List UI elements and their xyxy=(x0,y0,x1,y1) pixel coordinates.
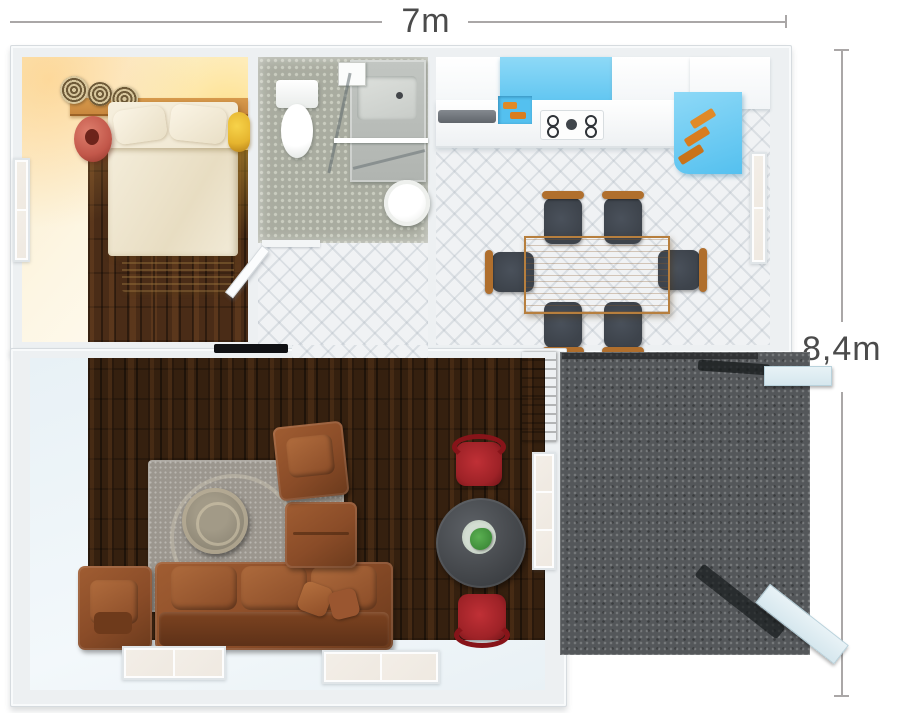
hallway-floor xyxy=(258,243,428,345)
window-pane xyxy=(754,209,763,260)
burner xyxy=(585,126,597,138)
armchair-pillow xyxy=(94,612,132,634)
kitchen-blue-side-cabinet xyxy=(674,92,742,174)
red-bistro-chair xyxy=(458,594,506,640)
kitchen-right-window xyxy=(750,152,767,264)
window-pane xyxy=(17,162,26,209)
hallway-opening xyxy=(292,345,428,359)
towel-bar xyxy=(334,138,428,143)
vase-opening xyxy=(85,129,99,145)
dining-table xyxy=(524,236,670,314)
burner-center xyxy=(566,119,577,130)
bathroom-door-threshold xyxy=(262,240,320,247)
right-dimension-line-top xyxy=(841,50,843,322)
foot-bench xyxy=(122,258,234,292)
top-dimension-end-tick xyxy=(785,15,787,28)
right-dimension-tick-bottom xyxy=(834,695,849,697)
table-tray-detail xyxy=(196,502,240,546)
gas-cooktop xyxy=(540,110,604,140)
sofa-corner-section xyxy=(285,502,357,568)
terrace-ramp-door-top xyxy=(764,366,832,386)
window-pane xyxy=(536,493,552,528)
pillow xyxy=(112,105,168,146)
bath-accessory xyxy=(338,62,366,86)
window-pane xyxy=(382,654,436,680)
shelf-dish xyxy=(510,112,526,119)
woven-basket xyxy=(60,76,88,104)
window-pane xyxy=(126,650,173,676)
cushion-seam xyxy=(293,532,349,535)
living-room-bottom-window xyxy=(322,650,440,684)
sink-drain xyxy=(396,92,403,99)
bedside-stool xyxy=(228,112,250,152)
window-pane xyxy=(326,654,380,680)
top-dimension-line-right xyxy=(468,21,786,23)
armchair-seat-cushion xyxy=(286,434,336,479)
round-basin xyxy=(384,180,430,226)
window-pane xyxy=(536,531,552,566)
wall-tv xyxy=(214,344,288,353)
shelf-dish xyxy=(503,102,517,109)
double-bed xyxy=(108,102,238,256)
terrace-door xyxy=(522,352,556,442)
coral-vase xyxy=(74,116,112,162)
living-room-right-window xyxy=(532,452,556,570)
window-pane xyxy=(536,456,552,491)
duvet xyxy=(108,148,238,256)
pillow xyxy=(168,103,227,145)
floor-plan-canvas: 7m 8,4m xyxy=(0,0,900,713)
counter-appliance xyxy=(438,110,496,123)
terrace-top-edge-shadow xyxy=(562,353,758,359)
red-bistro-chair xyxy=(456,442,502,486)
sofa-base xyxy=(159,612,389,646)
shelf-dish xyxy=(678,144,705,165)
toilet-bowl xyxy=(281,104,313,158)
window-pane xyxy=(17,211,26,258)
round-coffee-table xyxy=(182,488,248,554)
window-pane xyxy=(754,156,763,207)
vanity-sink xyxy=(357,76,417,120)
top-dimension-line-left xyxy=(10,21,382,23)
open-shelf-blue xyxy=(498,96,532,124)
burner xyxy=(547,126,559,138)
armchair-left xyxy=(78,566,152,650)
sofa-back-cushion xyxy=(171,566,237,610)
woven-basket xyxy=(88,82,112,106)
window-pane xyxy=(175,650,222,676)
width-dimension-label: 7m xyxy=(384,0,468,42)
bedroom-window xyxy=(13,158,30,262)
living-room-bottom-window xyxy=(122,646,226,680)
armchair-top xyxy=(272,421,349,502)
